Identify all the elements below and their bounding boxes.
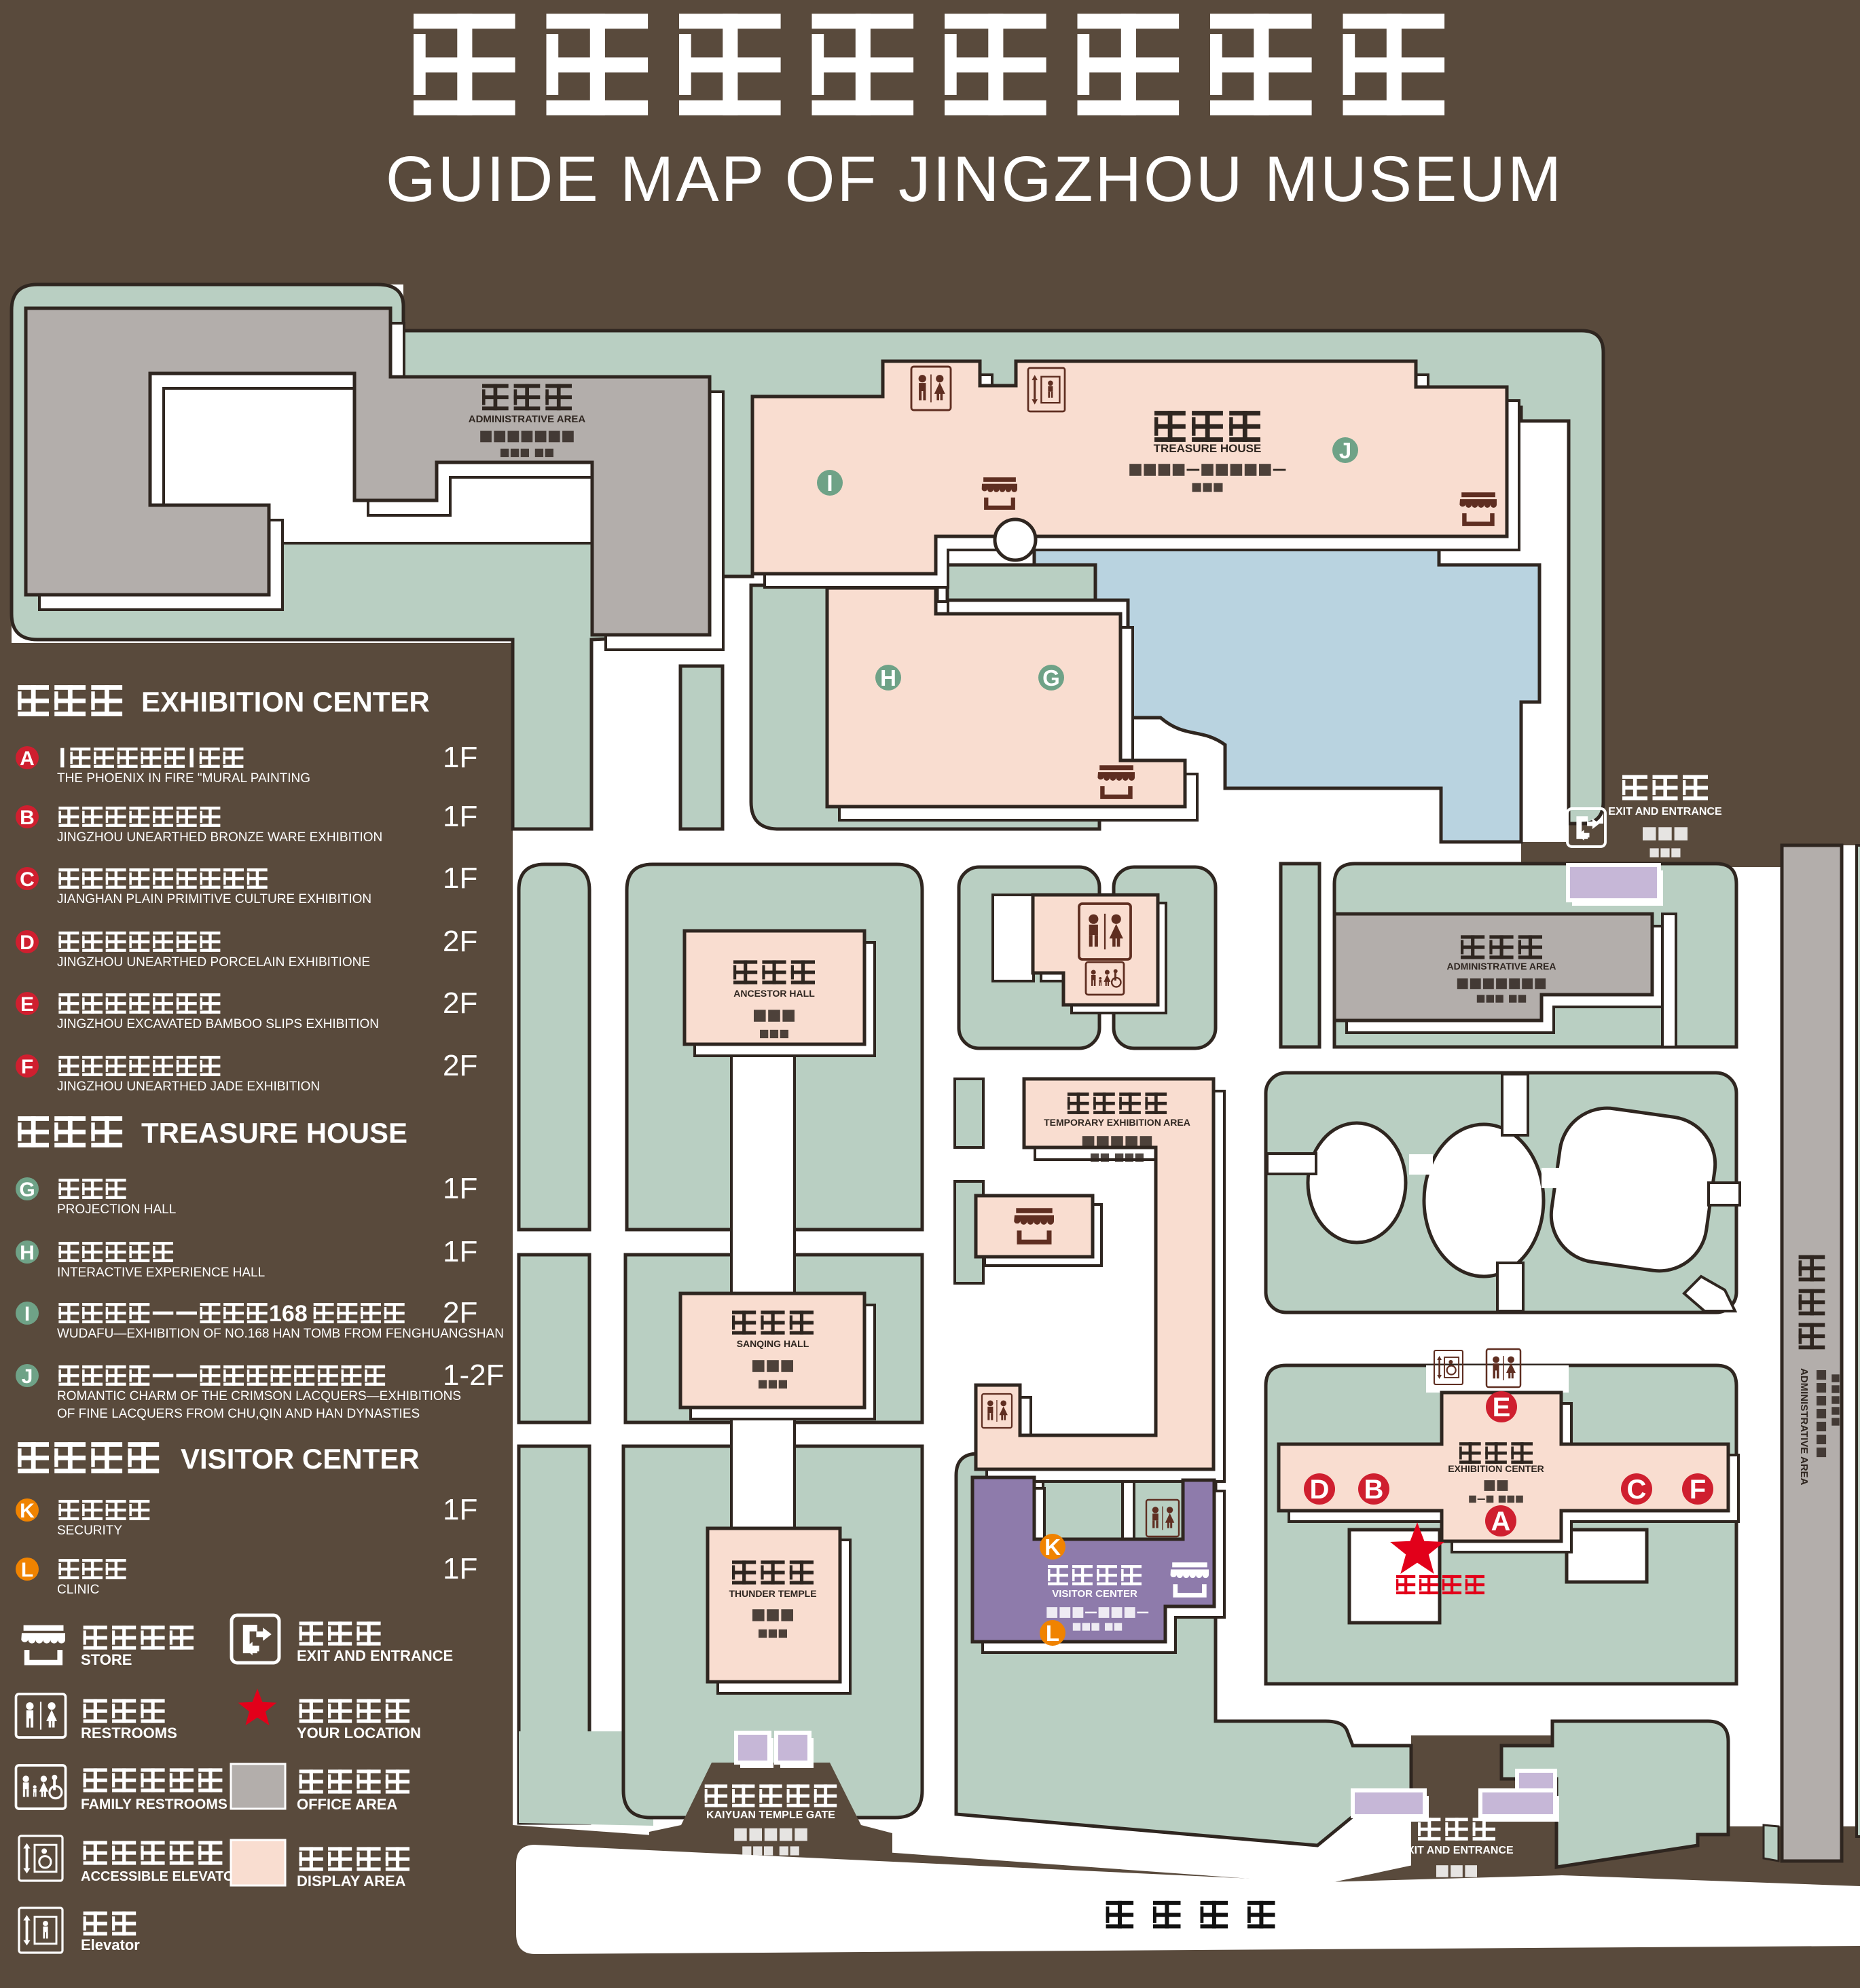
svg-text:C: C	[20, 868, 35, 891]
svg-text:DISPLAY AREA: DISPLAY AREA	[297, 1873, 406, 1890]
svg-text:H: H	[20, 1242, 35, 1264]
svg-text:JINGZHOU EXCAVATED BAMBOO SLIP: JINGZHOU EXCAVATED BAMBOO SLIPS EXHIBITI…	[57, 1017, 379, 1031]
svg-text:ADMINISTRATIVE AREA: ADMINISTRATIVE AREA	[1798, 1368, 1810, 1486]
svg-text:B: B	[1364, 1475, 1384, 1505]
svg-text:K: K	[1044, 1534, 1061, 1560]
svg-text:FAMILY RESTROOMS: FAMILY RESTROOMS	[81, 1797, 227, 1812]
svg-text:ADMINISTRATIVE AREA: ADMINISTRATIVE AREA	[1447, 961, 1556, 972]
svg-text:1F: 1F	[443, 800, 477, 833]
svg-text:CLINIC: CLINIC	[57, 1583, 99, 1597]
svg-text:1F: 1F	[443, 862, 477, 895]
svg-text:2F: 2F	[443, 1296, 477, 1329]
svg-text:RESTROOMS: RESTROOMS	[81, 1725, 177, 1742]
svg-text:THE PHOENIX IN FIRE "MURAL PAI: THE PHOENIX IN FIRE "MURAL PAINTING	[57, 771, 310, 786]
svg-text:B: B	[20, 807, 35, 829]
svg-text:TEMPORARY EXHIBITION AREA: TEMPORARY EXHIBITION AREA	[1044, 1117, 1190, 1128]
svg-text:L: L	[21, 1559, 33, 1581]
svg-text:SECURITY: SECURITY	[57, 1524, 122, 1538]
svg-text:ACCESSIBLE ELEVATOR: ACCESSIBLE ELEVATOR	[81, 1869, 244, 1884]
svg-text:1-2F: 1-2F	[443, 1359, 504, 1392]
svg-text:YOUR LOCATION: YOUR LOCATION	[297, 1725, 421, 1742]
svg-text:1F: 1F	[443, 1552, 477, 1585]
svg-text:EXIT AND ENTRANCE: EXIT AND ENTRANCE	[1400, 1845, 1514, 1856]
svg-text:J: J	[1339, 438, 1351, 463]
svg-text:OF FINE LACQUERS FROM CHU,QIN: OF FINE LACQUERS FROM CHU,QIN AND HAN DY…	[57, 1407, 420, 1421]
svg-text:TREASURE HOUSE: TREASURE HOUSE	[141, 1117, 407, 1149]
svg-text:TREASURE HOUSE: TREASURE HOUSE	[1154, 442, 1262, 455]
svg-text:H: H	[880, 665, 896, 691]
svg-text:EXIT AND ENTRANCE: EXIT AND ENTRANCE	[1608, 806, 1722, 817]
svg-text:SANQING HALL: SANQING HALL	[737, 1338, 809, 1349]
svg-text:K: K	[20, 1500, 35, 1522]
svg-text:2F: 2F	[443, 1049, 477, 1082]
svg-text:E: E	[20, 993, 34, 1016]
svg-text:1F: 1F	[443, 1493, 477, 1526]
svg-text:WUDAFU—EXHIBITION OF NO.168 HA: WUDAFU—EXHIBITION OF NO.168 HAN TOMB FRO…	[57, 1327, 504, 1341]
svg-text:A: A	[1491, 1507, 1511, 1536]
svg-text:F: F	[1690, 1475, 1706, 1505]
svg-text:PROJECTION HALL: PROJECTION HALL	[57, 1202, 176, 1217]
svg-text:Elevator: Elevator	[81, 1936, 140, 1953]
svg-text:1F: 1F	[443, 1235, 477, 1268]
svg-text:JINGZHOU UNEARTHED BRONZE WARE: JINGZHOU UNEARTHED BRONZE WARE EXHIBITIO…	[57, 830, 382, 845]
svg-text:GUIDE MAP OF JINGZHOU MUSEUM: GUIDE MAP OF JINGZHOU MUSEUM	[386, 143, 1563, 215]
svg-text:JINGZHOU UNEARTHED PORCELAIN E: JINGZHOU UNEARTHED PORCELAIN EXHIBITIONE	[57, 955, 370, 970]
svg-text:A: A	[20, 748, 35, 770]
svg-text:I: I	[826, 471, 833, 496]
svg-text:ROMANTIC CHARM OF THE CRIMSON: ROMANTIC CHARM OF THE CRIMSON LACQUERS—E…	[57, 1389, 461, 1403]
svg-text:JINGZHOU UNEARTHED JADE EXHIBI: JINGZHOU UNEARTHED JADE EXHIBITION	[57, 1080, 320, 1094]
svg-text:VISITOR CENTER: VISITOR CENTER	[181, 1443, 420, 1475]
svg-text:EXHIBITION CENTER: EXHIBITION CENTER	[141, 686, 430, 718]
svg-text:J: J	[22, 1365, 33, 1388]
svg-text:THUNDER TEMPLE: THUNDER TEMPLE	[729, 1588, 816, 1599]
svg-text:KAIYUAN TEMPLE GATE: KAIYUAN TEMPLE GATE	[706, 1809, 835, 1821]
svg-text:168: 168	[269, 1301, 308, 1327]
svg-text:VISITOR CENTER: VISITOR CENTER	[1052, 1588, 1137, 1600]
svg-text:1F: 1F	[443, 741, 477, 774]
svg-text:F: F	[21, 1056, 33, 1078]
svg-text:D: D	[1310, 1475, 1330, 1505]
svg-text:ADMINISTRATIVE AREA: ADMINISTRATIVE AREA	[469, 413, 586, 425]
svg-text:G: G	[1042, 665, 1060, 691]
svg-text:STORE: STORE	[81, 1651, 132, 1668]
svg-text:EXHIBITION CENTER: EXHIBITION CENTER	[1448, 1463, 1544, 1474]
svg-text:ANCESTOR HALL: ANCESTOR HALL	[733, 988, 815, 999]
svg-text:OFFICE AREA: OFFICE AREA	[297, 1796, 397, 1813]
svg-text:2F: 2F	[443, 987, 477, 1020]
svg-text:JIANGHAN PLAIN PRIMITIVE CULTU: JIANGHAN PLAIN PRIMITIVE CULTURE EXHIBIT…	[57, 892, 371, 906]
svg-text:E: E	[1493, 1393, 1511, 1422]
svg-text:L: L	[1046, 1621, 1059, 1646]
svg-text:C: C	[1627, 1475, 1647, 1505]
svg-text:1F: 1F	[443, 1172, 477, 1205]
svg-text:2F: 2F	[443, 925, 477, 958]
svg-text:D: D	[20, 932, 35, 954]
svg-text:I: I	[24, 1303, 30, 1325]
svg-text:EXIT AND ENTRANCE: EXIT AND ENTRANCE	[297, 1647, 453, 1664]
svg-text:G: G	[19, 1179, 35, 1201]
svg-text:INTERACTIVE EXPERIENCE HALL: INTERACTIVE EXPERIENCE HALL	[57, 1266, 265, 1280]
